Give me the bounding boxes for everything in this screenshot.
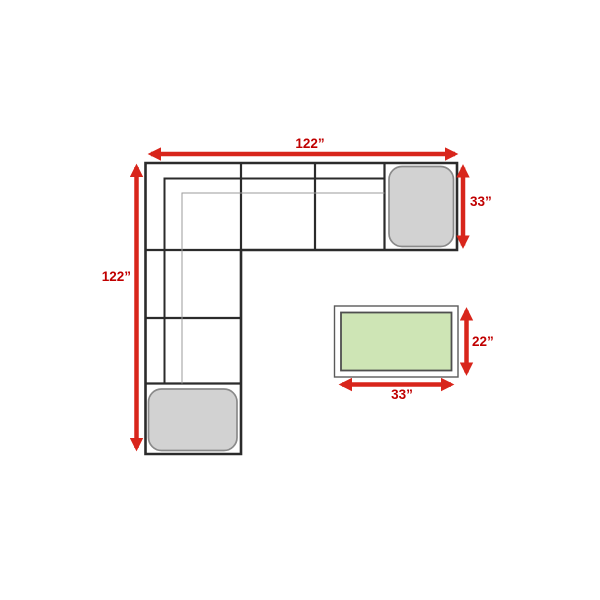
table-depth-label: 22” bbox=[472, 334, 494, 349]
sofa-height-label: 122” bbox=[102, 269, 131, 284]
coffee-table bbox=[335, 306, 459, 377]
table-width-label: 33” bbox=[391, 387, 413, 402]
sofa-ottoman-bottom-left bbox=[149, 389, 238, 451]
diagram-canvas: 122” 122” 33” 22” 33” bbox=[0, 0, 600, 600]
coffee-table-top bbox=[341, 313, 452, 371]
sofa-ottoman-top-right bbox=[389, 167, 454, 247]
sofa-depth-label: 33” bbox=[470, 194, 492, 209]
furniture-dimension-diagram: 122” 122” 33” 22” 33” bbox=[0, 0, 600, 600]
sofa-width-label: 122” bbox=[295, 136, 324, 151]
